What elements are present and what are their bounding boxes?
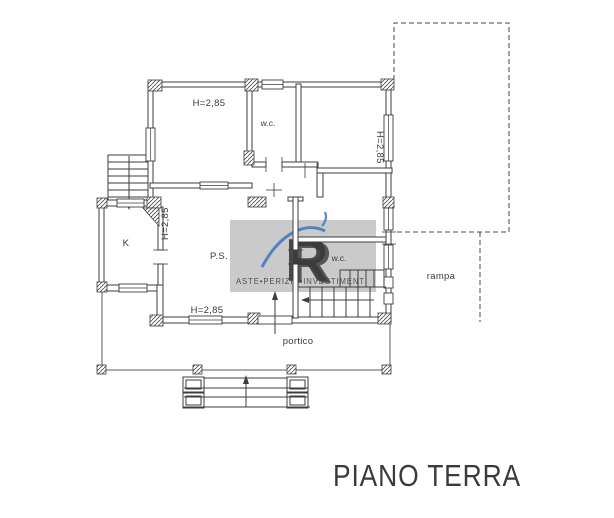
entrance-arrow	[272, 291, 278, 334]
dashed-rect	[394, 23, 509, 232]
wall-wc-inner-top	[298, 237, 386, 242]
label-ramp: rampa	[427, 271, 456, 282]
label-room-top-right-height: H=2,85	[374, 131, 385, 164]
pillar	[148, 80, 162, 91]
pillar	[383, 197, 394, 208]
label-living: P.S.	[210, 251, 228, 262]
pillar	[245, 79, 258, 91]
watermark: R R ASTE•PERIZIE•INVESTIMENTI	[230, 212, 376, 296]
left-arrow-icon	[301, 297, 309, 303]
pillar	[150, 315, 163, 326]
wall-room-tr-bottom	[317, 168, 392, 173]
window	[384, 293, 393, 304]
pillar	[97, 198, 107, 208]
label-bottom-height: H=2,85	[191, 305, 224, 316]
pillar	[378, 313, 391, 324]
up-arrow-icon	[243, 375, 249, 384]
pillar	[147, 197, 161, 208]
floor-plan-drawing: R R ASTE•PERIZIE•INVESTIMENTI	[0, 0, 614, 518]
watermark-text: ASTE•PERIZIE•INVESTIMENTI	[236, 276, 368, 286]
page-title: PIANO TERRA	[333, 458, 521, 493]
wall-wc-right	[296, 84, 301, 162]
portico-outline	[97, 292, 391, 374]
label-room-top-left-height: H=2,85	[193, 98, 226, 109]
label-wc-top: w.c.	[260, 118, 276, 128]
up-arrow-icon	[272, 291, 278, 300]
portico-pillar	[97, 365, 106, 374]
wall-divider-upper	[293, 197, 298, 250]
wall-room-wc	[247, 84, 252, 154]
pillar	[97, 282, 107, 292]
label-kitchen: K	[123, 238, 130, 249]
label-portico: portico	[283, 336, 314, 347]
portico-pillar	[382, 365, 391, 374]
wall-annex-left	[99, 200, 104, 291]
portico-edge	[102, 292, 390, 370]
pillar	[381, 79, 394, 90]
entrance-steps	[183, 375, 310, 408]
floor-plan-page: R R ASTE•PERIZIE•INVESTIMENTI	[0, 0, 614, 518]
portico-pillar	[287, 365, 296, 374]
wall-divider-lower	[293, 264, 298, 318]
window	[384, 277, 393, 288]
under-stair-triangle	[143, 208, 159, 226]
label-wc-inner: w.c.	[331, 253, 347, 263]
wall-kitchen-lower	[158, 264, 163, 285]
wall-corridor-right	[317, 173, 323, 197]
pillar	[248, 197, 266, 207]
wall-wc-bottom	[282, 162, 318, 167]
portico-pillar	[193, 365, 202, 374]
label-hall-left-height: H=2,85	[160, 207, 171, 240]
pillar	[244, 151, 254, 165]
